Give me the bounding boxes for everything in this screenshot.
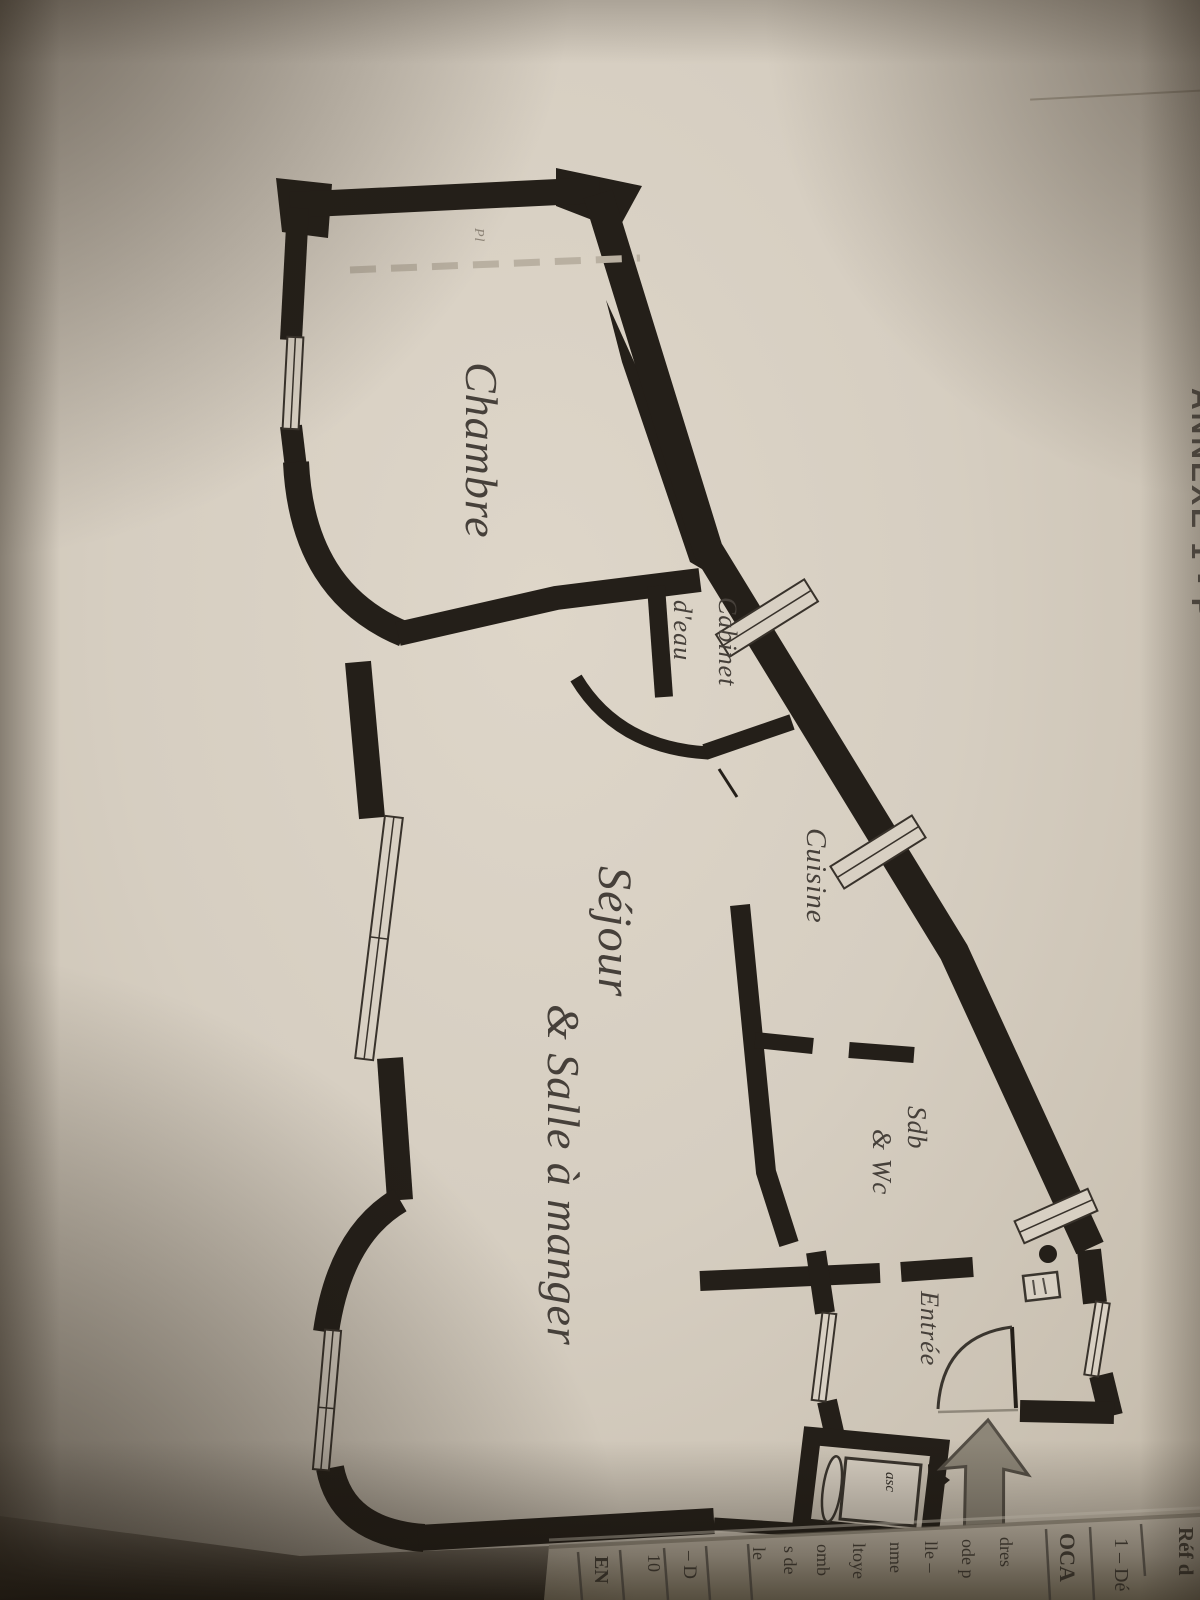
fold-fragment: 1 – Dé	[1109, 1538, 1132, 1591]
cabinet-door-mark	[719, 769, 737, 797]
wall-cabinet-curved-partition	[576, 678, 708, 753]
elevator-label: asc	[881, 1472, 898, 1492]
wall-chambre-left-upper	[291, 208, 298, 340]
wall-sdb-bottom1	[700, 1273, 880, 1281]
room-label-chambre: Chambre	[455, 362, 508, 539]
wall-right-upper	[1089, 1250, 1095, 1303]
room-label-sdb-line1: Sdb	[901, 1106, 932, 1150]
wall-chambre-curve	[296, 462, 404, 634]
fold-fragment: s de	[779, 1546, 800, 1575]
wall-chambre-left-lower	[291, 426, 296, 468]
wall-cabinet-bottom	[705, 722, 792, 752]
fold-fragment: le	[748, 1547, 769, 1560]
photo-canvas: Chambre Cabinet d'eau Cuisine Séjour & S…	[0, 0, 1200, 1600]
room-label-cabinet-line2: d'eau	[667, 600, 697, 661]
wall-cuisine-sdb-stub1	[755, 1040, 813, 1046]
window-right-wall	[1084, 1301, 1109, 1376]
wall-top	[290, 190, 600, 205]
wall-sejour-west-curve	[326, 1200, 400, 1332]
wall-sejour-west-upper	[358, 662, 372, 818]
wall-cabinet-left	[656, 586, 664, 697]
wall-sdb-bottom2	[901, 1267, 973, 1272]
closet-dashed-line	[350, 258, 640, 270]
elevator-cab-box	[840, 1458, 921, 1526]
fold-fragment: Réf d	[1173, 1527, 1198, 1575]
room-label-cuisine: Cuisine	[799, 828, 832, 924]
wall-entree-west-upper	[816, 1252, 825, 1313]
wall-sejour-corner-curve	[330, 1468, 424, 1538]
entry-door	[938, 1327, 1018, 1412]
fold-fragment: omb	[812, 1544, 833, 1576]
fold-fragment: nme	[885, 1542, 906, 1573]
fold-fragment: lle –	[920, 1541, 941, 1573]
wall-cuisine-sdb-stub2	[849, 1050, 914, 1055]
room-label-cabinet-line1: Cabinet	[712, 597, 742, 686]
fold-fragment: dres	[995, 1537, 1016, 1567]
wall-hinge-dot	[1039, 1245, 1057, 1263]
closet-label: Pl	[470, 228, 486, 242]
wall-diagonal-facade	[598, 194, 1090, 1248]
room-label-sejour-line2: & Salle à manger	[537, 1004, 590, 1346]
door-threshold-line	[938, 1410, 1018, 1412]
window-sejour-lower	[313, 1330, 341, 1471]
wall-sejour-west-mid	[390, 1058, 400, 1200]
room-label-entree: Entrée	[914, 1291, 944, 1366]
room-label-sdb-line2: & Wc	[866, 1129, 897, 1195]
door-leaf	[1012, 1327, 1016, 1408]
window-chambre-left	[283, 337, 304, 430]
window-sejour-long	[355, 816, 403, 1060]
fold-fragment: OCA	[1054, 1533, 1080, 1582]
window-entree-west	[812, 1312, 837, 1401]
fold-fragment: ltoye	[848, 1543, 869, 1579]
fold-fragment: EN	[589, 1556, 612, 1584]
wall-cuisine-west	[740, 905, 789, 1244]
door-swing-arc	[938, 1327, 1012, 1409]
fold-fragment: 10	[643, 1554, 664, 1572]
fold-fragment: – D	[678, 1551, 700, 1579]
annexe-side-heading: ANNEXE 1 - P	[1184, 388, 1200, 621]
fold-fragment: ode p	[957, 1539, 978, 1579]
floor-plan-drawing	[0, 0, 1200, 1600]
wall-bottom-right	[1020, 1411, 1114, 1413]
room-label-sejour-line1: Séjour	[587, 866, 642, 997]
fixture-box	[1023, 1272, 1060, 1301]
